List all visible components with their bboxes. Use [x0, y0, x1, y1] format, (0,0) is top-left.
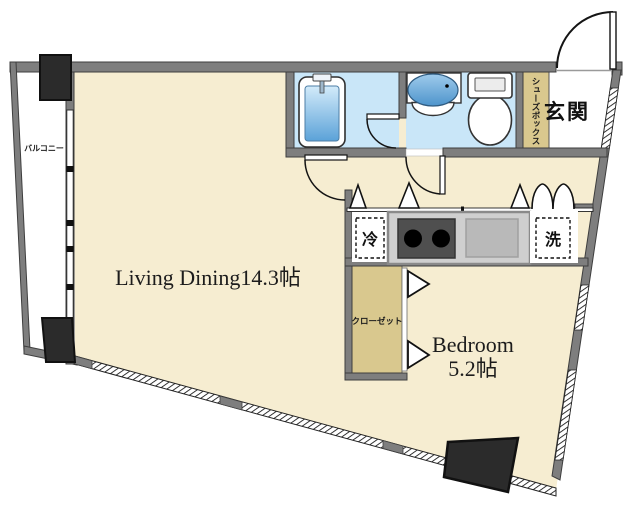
pillar-top-left: [40, 55, 71, 100]
washroom-door-threshold: [406, 149, 443, 156]
window-mullion: [66, 166, 73, 172]
top-wall: [10, 62, 556, 72]
window-mullion: [66, 246, 73, 252]
pillar-bottom-left: [42, 318, 75, 362]
bath-wash-divider-wall: [399, 72, 406, 118]
floor-plan-canvas: Living Dining14.3帖 Bedroom 5.2帖 玄関 バルコニー…: [0, 0, 640, 506]
entrance-door: [557, 12, 616, 69]
basin-drain: [445, 84, 449, 88]
entrance-label: 玄関: [544, 100, 590, 124]
balcony-window: [66, 110, 73, 340]
toilet: [468, 73, 512, 145]
toilet-bowl: [469, 95, 512, 145]
closet-label: クローゼット: [351, 316, 402, 326]
entrance-door-panel: [610, 12, 616, 69]
bathtub-faucet-stem: [320, 81, 324, 93]
hall-door-panel: [305, 155, 347, 160]
shoebox-label: シューズボックス: [531, 77, 541, 145]
bathtub: [299, 74, 345, 147]
window-mullion: [66, 220, 73, 226]
bathroom-door-panel: [367, 114, 399, 119]
balcony-label: バルコニー: [24, 144, 64, 153]
floor-plan-page: Living Dining14.3帖 Bedroom 5.2帖 玄関 バルコニー…: [0, 0, 640, 506]
kitchen-sink: [466, 219, 518, 257]
bathtub-faucet: [313, 74, 331, 81]
pillar-bottom-right: [444, 438, 518, 492]
bedroom-label: Bedroom: [432, 332, 514, 357]
closet-bottom-wall: [345, 373, 407, 380]
balcony-left-wall: [10, 62, 30, 352]
window-mullion: [66, 284, 73, 290]
entrance-door-arc: [557, 12, 613, 68]
basin-bowl: [408, 74, 458, 106]
bathtub-inner: [305, 86, 339, 141]
bathroom-left-wall: [286, 72, 294, 157]
entrance-bottom-wall: [443, 148, 607, 157]
hall-west-wall: [345, 190, 352, 380]
washer-label: 洗: [545, 230, 561, 249]
washroom-door-panel: [440, 156, 445, 194]
stove-burner-right: [432, 230, 450, 248]
bedroom-size-label: 5.2帖: [448, 356, 498, 381]
closet-door-strip: [402, 268, 407, 371]
living-dining-label: Living Dining14.3帖: [115, 265, 301, 290]
toilet-tank-lid: [475, 78, 505, 91]
washroom-right-wall: [516, 72, 523, 157]
fridge-label: 冷: [362, 230, 378, 249]
stove-burner-left: [404, 230, 422, 248]
